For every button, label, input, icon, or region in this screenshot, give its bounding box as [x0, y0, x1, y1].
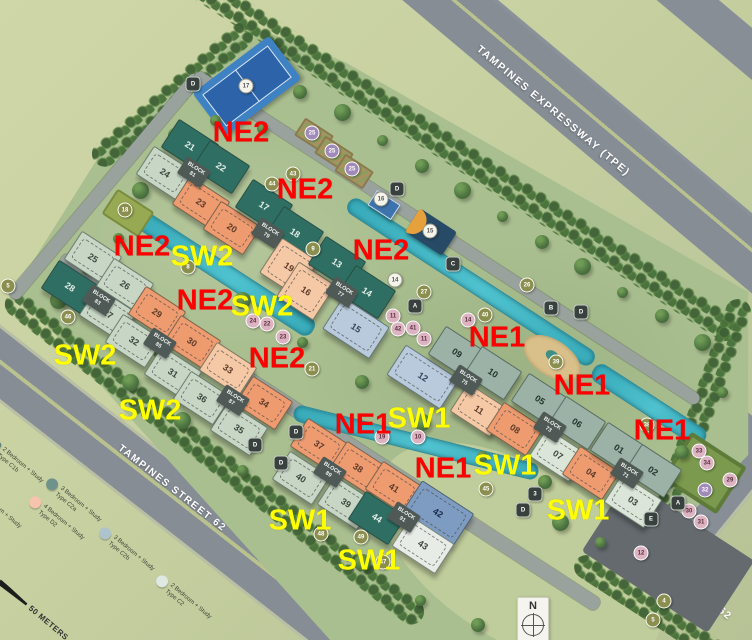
- amenity-marker-E: E: [644, 512, 659, 527]
- amenity-marker-49: 49: [354, 530, 369, 545]
- tree-icon: [574, 258, 591, 275]
- tree-icon: [595, 537, 606, 548]
- tree-icon: [717, 387, 728, 398]
- tree-icon: [132, 182, 149, 199]
- orientation-label-sw1: SW1: [338, 545, 401, 578]
- amenity-marker-D: D: [516, 503, 531, 518]
- legend-item-5: 3 Bedroom + StudyType C2b: [95, 525, 156, 579]
- amenity-marker-21: 21: [305, 362, 320, 377]
- amenity-marker-9: 9: [306, 242, 321, 257]
- tree-icon: [122, 374, 139, 391]
- tree-icon: [617, 287, 628, 298]
- legend-item-1: 2 Bedroom + StudyType C1b: [0, 437, 44, 491]
- amenity-marker-17: 17: [239, 79, 254, 94]
- tree-icon: [237, 465, 248, 476]
- orientation-label-ne1: NE1: [554, 370, 610, 403]
- amenity-marker-3: 3: [528, 487, 543, 502]
- orientation-label-ne1: NE1: [335, 409, 391, 442]
- amenity-marker-40: 40: [478, 308, 493, 323]
- tree-icon: [471, 618, 485, 632]
- legend-item-2: Bedroom + Study: [0, 495, 22, 531]
- legend-label: 2 Bedroom + StudyType C1b: [0, 447, 44, 492]
- amenity-marker-11: 11: [417, 332, 432, 347]
- tree-icon: [535, 235, 549, 249]
- amenity-marker-D: D: [274, 456, 289, 471]
- orientation-label-sw2: SW2: [231, 291, 294, 324]
- orientation-label-sw1: SW1: [388, 403, 451, 436]
- scale-bar-wedge: [0, 579, 29, 607]
- amenity-marker-25: 25: [305, 126, 320, 141]
- orientation-label-ne2: NE2: [114, 231, 170, 264]
- amenity-marker-5: 5: [646, 613, 661, 628]
- amenity-marker-D: D: [289, 425, 304, 440]
- amenity-marker-32: 32: [698, 483, 713, 498]
- orientation-label-sw2: SW2: [171, 241, 234, 274]
- compass-north-label: N: [529, 600, 537, 612]
- tree-icon: [415, 159, 429, 173]
- amenity-marker-D: D: [574, 305, 589, 320]
- tree-icon: [334, 104, 351, 121]
- amenity-marker-A: A: [671, 496, 686, 511]
- amenity-marker-14: 14: [388, 273, 403, 288]
- orientation-label-ne2: NE2: [353, 235, 409, 268]
- tree-icon: [694, 334, 711, 351]
- amenity-marker-15: 15: [423, 224, 438, 239]
- orientation-label-ne1: NE1: [634, 415, 690, 448]
- scale-bar: 50 METERS: [0, 578, 70, 640]
- amenity-marker-12: 12: [634, 546, 649, 561]
- compass: N: [517, 597, 549, 640]
- tree-icon: [377, 135, 388, 146]
- tree-icon: [415, 595, 426, 606]
- orientation-label-ne1: NE1: [469, 322, 525, 355]
- legend-label: 2 Bedroom + StudyType C2: [163, 583, 212, 628]
- legend-label: 3 Bedroom + StudyType C2b: [106, 535, 155, 580]
- amenity-marker-4: 4: [657, 594, 672, 609]
- orientation-label-ne2: NE2: [277, 174, 333, 207]
- orientation-label-sw2: SW2: [54, 340, 117, 373]
- orientation-label-ne1: NE1: [415, 453, 471, 486]
- amenity-marker-31: 31: [694, 515, 709, 530]
- amenity-marker-A: A: [408, 299, 423, 314]
- amenity-marker-25: 25: [325, 144, 340, 159]
- orientation-label-sw1: SW1: [547, 495, 610, 528]
- legend-item-6: 2 Bedroom + StudyType C2: [152, 573, 213, 627]
- orientation-label-sw1: SW1: [474, 450, 537, 483]
- amenity-marker-D: D: [390, 182, 405, 197]
- amenity-marker-27: 27: [417, 285, 432, 300]
- amenity-marker-25: 25: [345, 162, 360, 177]
- orientation-label-ne2: NE2: [249, 343, 305, 376]
- legend-label: Bedroom + Study: [0, 495, 22, 531]
- orientation-label-sw1: SW1: [269, 505, 332, 538]
- amenity-marker-39: 39: [549, 355, 564, 370]
- amenity-marker-B: B: [544, 301, 559, 316]
- tree-icon: [497, 211, 508, 222]
- tree-icon: [355, 375, 369, 389]
- amenity-marker-18: 18: [118, 203, 133, 218]
- compass-dial-icon: [522, 614, 544, 636]
- amenity-marker-5: 5: [1, 279, 16, 294]
- tree-icon: [454, 182, 471, 199]
- orientation-label-ne2: NE2: [213, 117, 269, 150]
- site-plan-canvas[interactable]: TAMPINES EXPRESSWAY (TPE) TAMPINES STREE…: [0, 0, 752, 640]
- amenity-marker-D: D: [248, 438, 263, 453]
- amenity-marker-45: 45: [479, 482, 494, 497]
- tree-icon: [293, 85, 307, 99]
- amenity-marker-26: 26: [520, 278, 535, 293]
- orientation-label-sw2: SW2: [119, 395, 182, 428]
- amenity-marker-C: C: [446, 257, 461, 272]
- amenity-marker-42: 42: [391, 322, 406, 337]
- tree-icon: [655, 309, 669, 323]
- orientation-label-ne2: NE2: [177, 285, 233, 318]
- scale-bar-label: 50 METERS: [27, 604, 70, 640]
- amenity-marker-46: 46: [61, 310, 76, 325]
- amenity-marker-D: D: [186, 77, 201, 92]
- amenity-marker-29: 29: [723, 473, 738, 488]
- amenity-marker-34: 34: [700, 456, 715, 471]
- amenity-marker-16: 16: [374, 192, 389, 207]
